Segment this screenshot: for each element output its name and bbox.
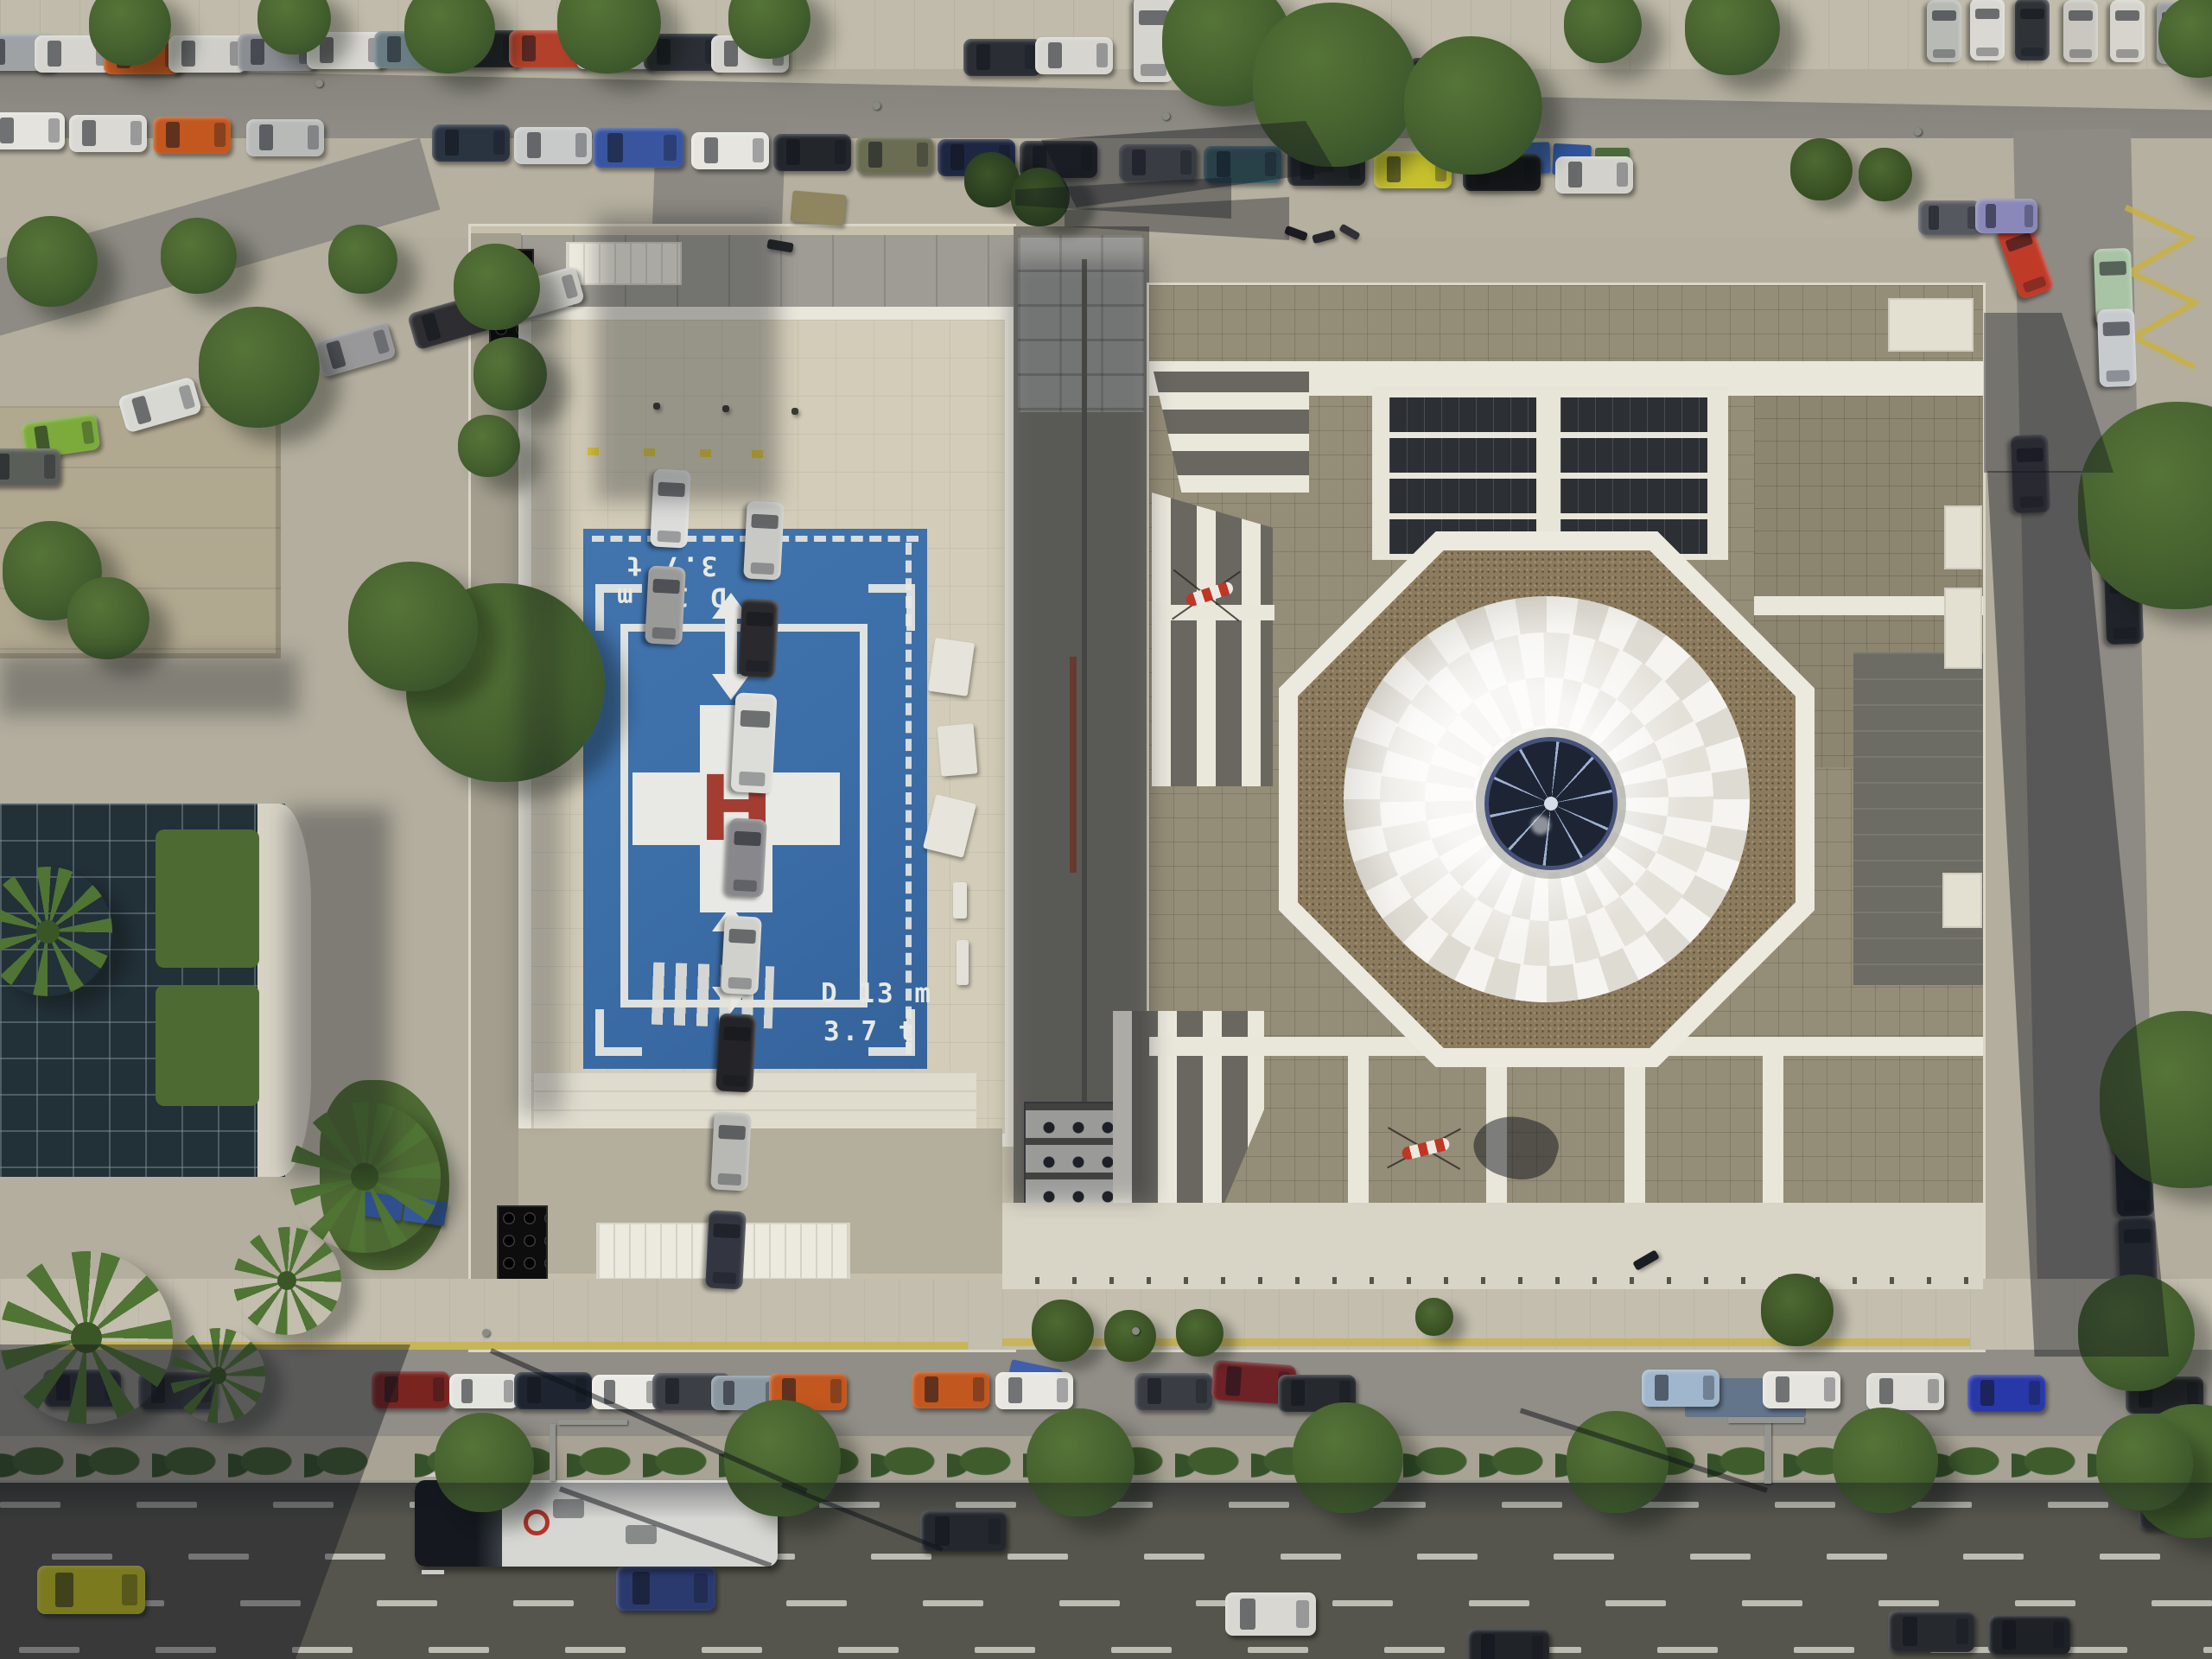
car	[2104, 565, 2144, 644]
car-rear-window	[1180, 150, 1192, 175]
bus-roof-hatch	[626, 1525, 657, 1544]
street-lamp	[1132, 1327, 1140, 1335]
bus-logo	[524, 1510, 550, 1535]
bus	[415, 1480, 778, 1567]
car	[1988, 1615, 2070, 1655]
car	[2011, 434, 2050, 512]
car	[500, 265, 585, 322]
car-windshield	[723, 1381, 735, 1406]
car-rear-window	[738, 772, 766, 787]
car-rear-window	[1081, 147, 1092, 171]
car-rear-window	[2022, 276, 2047, 293]
car	[442, 30, 519, 67]
car	[168, 35, 246, 73]
car-rear-window	[1396, 60, 1408, 85]
car-windshield	[1476, 159, 1489, 186]
car-rear-window	[835, 140, 846, 164]
car-rear-window	[1096, 43, 1108, 67]
car	[312, 321, 397, 378]
car-rear-window	[753, 138, 764, 162]
car-windshield	[746, 612, 773, 626]
car-windshield	[117, 42, 130, 69]
car	[69, 115, 147, 152]
aerial-hospital-photo: H D 13 m 3.7 t D 13 m 3.7 t	[0, 0, 2212, 1659]
car	[1119, 144, 1197, 181]
car-windshield	[1008, 1377, 1021, 1404]
car	[1866, 1373, 1944, 1410]
car-windshield	[82, 120, 95, 147]
car-rear-window	[1196, 1379, 1207, 1403]
car-windshield	[786, 139, 799, 166]
car-rear-window	[493, 130, 505, 155]
car	[153, 117, 231, 154]
bus-windshield	[415, 1480, 502, 1567]
car-rear-window	[973, 1377, 984, 1402]
car-windshield	[657, 39, 670, 66]
car	[43, 1370, 121, 1407]
car-windshield	[527, 1377, 540, 1404]
car	[726, 817, 767, 897]
car	[1888, 1611, 1974, 1652]
car	[1927, 0, 1961, 62]
car	[449, 1374, 518, 1408]
car-windshield	[1348, 60, 1361, 86]
car-windshield	[1033, 146, 1046, 173]
car	[432, 124, 510, 162]
car-windshield	[665, 1378, 678, 1405]
car-windshield	[320, 37, 333, 64]
car	[35, 35, 112, 73]
car-windshield	[935, 1516, 950, 1547]
car-rear-window	[1532, 1636, 1543, 1659]
car-rear-window	[214, 123, 226, 147]
car-windshield	[522, 35, 535, 62]
car-windshield	[166, 122, 179, 149]
car	[37, 1566, 145, 1614]
car-windshield	[1776, 1376, 1789, 1403]
car	[0, 112, 65, 149]
car-windshield	[2110, 579, 2137, 593]
car	[1135, 1373, 1212, 1410]
street-lamp	[1914, 128, 1922, 136]
car-windshield	[56, 1375, 69, 1402]
car	[650, 468, 691, 548]
car-windshield	[181, 41, 194, 67]
car	[509, 30, 587, 67]
car	[912, 1371, 989, 1408]
car-windshield	[514, 284, 534, 314]
car-windshield	[2162, 12, 2187, 22]
car	[1467, 1629, 1549, 1659]
car-windshield	[2017, 448, 2044, 461]
car-windshield	[385, 1376, 397, 1403]
car-rear-window	[2021, 48, 2044, 56]
car	[710, 1111, 752, 1191]
car-rear-window	[44, 454, 55, 479]
car-rear-window	[2163, 51, 2185, 60]
car-windshield	[1422, 63, 1435, 90]
car	[1204, 146, 1281, 183]
car-windshield	[259, 124, 272, 151]
car	[938, 139, 1015, 176]
car-rear-window	[276, 356, 293, 382]
car-windshield	[48, 41, 60, 67]
car-windshield	[751, 514, 779, 529]
car-rear-window	[1976, 48, 1999, 56]
car	[715, 1013, 757, 1092]
car-rear-window	[48, 118, 60, 143]
car	[1278, 1375, 1356, 1412]
car-windshield	[950, 144, 963, 171]
vehicles-layer	[0, 0, 2212, 1659]
car	[246, 119, 324, 156]
car-rear-window	[1933, 49, 1955, 58]
car-windshield	[740, 709, 771, 728]
car	[2015, 0, 2050, 60]
car-windshield	[1147, 1378, 1160, 1405]
car-windshield	[632, 1572, 650, 1604]
car-rear-window	[733, 879, 757, 891]
traffic-gantry-pole	[550, 1424, 556, 1481]
car-rear-window	[1296, 1600, 1309, 1628]
car-windshield	[782, 1378, 795, 1405]
car-windshield	[704, 137, 717, 164]
car-rear-window	[694, 1573, 708, 1602]
car	[2118, 1215, 2158, 1294]
car	[2139, 1491, 2212, 1529]
car-rear-window	[1025, 45, 1036, 69]
car	[138, 1372, 216, 1409]
car	[593, 128, 683, 168]
car-rear-window	[2024, 205, 2033, 227]
car-windshield	[461, 1379, 474, 1404]
car-windshield	[326, 340, 346, 369]
car-windshield	[2107, 514, 2134, 528]
car	[238, 34, 315, 71]
car	[1035, 37, 1113, 74]
car-windshield	[1240, 1599, 1255, 1630]
car-windshield	[1980, 1380, 1993, 1407]
car-rear-window	[2019, 496, 2044, 508]
car-windshield	[1903, 1617, 1917, 1647]
car	[1374, 151, 1452, 188]
car-rear-window	[772, 41, 784, 66]
car-rear-window	[1471, 64, 1482, 88]
car	[1225, 1592, 1316, 1636]
car	[1555, 156, 1633, 194]
car-windshield	[607, 133, 623, 162]
car	[307, 32, 385, 69]
car	[576, 32, 654, 69]
car-rear-window	[717, 1173, 741, 1185]
car-windshield	[734, 831, 761, 846]
car-windshield	[1139, 10, 1167, 25]
car-windshield	[1481, 1634, 1495, 1659]
car-windshield	[2002, 1620, 2016, 1649]
car	[1642, 1370, 1719, 1407]
car-rear-window	[917, 143, 928, 167]
car-windshield	[2117, 1087, 2144, 1101]
car-rear-window	[830, 1379, 842, 1403]
car-windshield	[1048, 42, 1061, 69]
car	[1409, 58, 1487, 95]
car	[645, 565, 686, 645]
car-rear-window	[2123, 1199, 2147, 1211]
car	[963, 39, 1041, 76]
car-windshield	[723, 1027, 751, 1041]
car-windshield	[589, 37, 602, 64]
car-windshield	[1132, 149, 1145, 176]
car	[769, 1373, 847, 1410]
car-windshield	[1568, 162, 1581, 188]
bus-roof-hatch	[553, 1499, 584, 1518]
car-windshield	[0, 118, 13, 144]
car-rear-window	[1928, 1379, 1939, 1403]
car-windshield	[454, 35, 467, 62]
car-rear-window	[2200, 1498, 2211, 1522]
car	[1918, 200, 1980, 235]
car-rear-window	[750, 562, 774, 574]
car-windshield	[2139, 1382, 2152, 1408]
car-windshield	[1879, 1378, 1892, 1405]
car	[1335, 54, 1413, 92]
car	[372, 1371, 449, 1408]
car-rear-window	[2029, 1381, 2040, 1405]
car-rear-window	[1824, 1377, 1835, 1402]
car-windshield	[387, 36, 400, 63]
car	[743, 500, 785, 580]
car	[2097, 308, 2137, 386]
car-rear-window	[712, 1271, 736, 1283]
car-windshield	[421, 312, 441, 341]
car-rear-window	[2113, 627, 2137, 639]
car	[773, 134, 851, 171]
car	[1287, 149, 1365, 186]
car-rear-window	[575, 133, 587, 157]
car-windshield	[1975, 9, 2000, 19]
street-lamp	[1162, 112, 1170, 120]
car-windshield	[55, 1573, 73, 1607]
car-rear-window	[2053, 1622, 2064, 1647]
car-rear-window	[2106, 370, 2130, 382]
car	[711, 35, 789, 73]
car-windshield	[1655, 1375, 1668, 1402]
car-windshield	[1225, 1366, 1242, 1395]
car	[644, 34, 721, 71]
car-windshield	[652, 579, 680, 594]
car-rear-window	[1703, 1376, 1714, 1400]
car	[705, 1210, 747, 1289]
car	[1967, 1375, 2045, 1412]
car	[1134, 0, 1173, 82]
car-windshield	[728, 929, 756, 944]
car-rear-window	[105, 1376, 116, 1400]
car-rear-window	[2126, 1277, 2151, 1289]
car-windshield	[229, 367, 249, 397]
car-windshield	[1300, 154, 1313, 181]
street-lamp	[315, 79, 323, 87]
car	[374, 31, 452, 68]
car-rear-window	[130, 121, 142, 145]
car-rear-window	[308, 125, 319, 149]
car-rear-window	[1956, 1618, 1968, 1645]
car-rear-window	[657, 530, 681, 542]
car	[730, 692, 777, 793]
car-rear-window	[561, 273, 578, 299]
car-rear-window	[372, 328, 390, 354]
car-windshield	[1291, 1380, 1304, 1407]
car	[995, 1372, 1073, 1409]
car-windshield	[976, 44, 989, 71]
car-windshield	[2005, 232, 2033, 252]
car	[616, 1566, 715, 1611]
median-hedge-west	[0, 1436, 372, 1486]
car-windshield	[151, 1377, 164, 1404]
street-lamp	[873, 102, 880, 110]
car	[1020, 141, 1097, 178]
car-rear-window	[178, 384, 195, 410]
car-windshield	[868, 142, 881, 168]
car-rear-window	[1339, 1381, 1351, 1405]
car-windshield	[445, 130, 458, 156]
bus-mirror	[422, 1570, 444, 1574]
car-rear-window	[80, 420, 94, 444]
car-rear-window	[433, 1377, 444, 1402]
car-rear-window	[200, 1378, 211, 1402]
car-rear-window	[1617, 162, 1628, 187]
car-windshield	[2100, 261, 2126, 275]
car-rear-window	[2187, 1382, 2198, 1407]
car-rear-window	[999, 145, 1010, 169]
car-windshield	[2020, 9, 2045, 19]
car	[2114, 1137, 2154, 1216]
car-windshield	[1986, 204, 1996, 229]
car-rear-window	[1349, 155, 1360, 179]
car-windshield	[718, 1125, 746, 1140]
car	[592, 1375, 661, 1409]
car-windshield	[2152, 1497, 2164, 1524]
car-windshield	[0, 39, 5, 66]
car-rear-window	[1524, 160, 1535, 184]
car-windshield	[1217, 151, 1230, 178]
car-rear-window	[722, 1074, 747, 1086]
car	[1763, 1371, 1840, 1408]
car-windshield	[2069, 10, 2094, 21]
car-rear-window	[1265, 152, 1276, 176]
street-lamp	[482, 1329, 490, 1337]
car-windshield	[2120, 1151, 2147, 1165]
car-windshield	[658, 482, 685, 497]
car-rear-window	[988, 1518, 1001, 1545]
car	[1463, 154, 1541, 191]
car-rear-window	[1057, 1378, 1068, 1402]
car-rear-window	[745, 659, 769, 671]
car-windshield	[724, 41, 737, 67]
car	[118, 376, 202, 433]
median-hedge	[415, 1436, 2212, 1486]
car-windshield	[2115, 10, 2140, 21]
car-windshield	[1932, 10, 1957, 21]
car	[1975, 199, 2037, 233]
car-windshield	[2124, 1229, 2151, 1243]
car-rear-window	[1435, 157, 1446, 181]
car	[855, 137, 933, 174]
traffic-gantry-arm	[558, 1420, 627, 1425]
car-rear-window	[728, 976, 752, 988]
car-windshield	[1387, 156, 1400, 183]
car-rear-window	[504, 1380, 513, 1402]
car	[1970, 0, 2005, 60]
car-windshield	[527, 132, 540, 159]
car-windshield	[0, 454, 10, 480]
car-rear-window	[664, 135, 677, 160]
car-windshield	[251, 39, 264, 66]
car	[0, 448, 60, 486]
car	[2157, 2, 2191, 64]
car	[407, 293, 492, 350]
car-rear-window	[2116, 49, 2139, 58]
car	[721, 915, 762, 995]
car	[738, 598, 779, 677]
car-rear-window	[1141, 64, 1166, 76]
car-windshield	[1929, 206, 1939, 231]
traffic-gantry-pole	[1764, 1421, 1771, 1484]
car	[2063, 0, 2098, 62]
car-rear-window	[652, 626, 676, 639]
traffic-gantry-arm	[1728, 1417, 1804, 1423]
car	[2126, 1376, 2203, 1414]
car	[691, 132, 769, 169]
car-rear-window	[2069, 49, 2092, 58]
car-windshield	[713, 1224, 741, 1238]
car-rear-window	[467, 301, 485, 327]
car	[215, 348, 300, 405]
car	[514, 127, 592, 164]
car	[2110, 0, 2145, 62]
car-windshield	[925, 1376, 938, 1403]
car-windshield	[2103, 321, 2130, 335]
car-rear-window	[122, 1574, 137, 1605]
car-windshield	[131, 395, 151, 424]
